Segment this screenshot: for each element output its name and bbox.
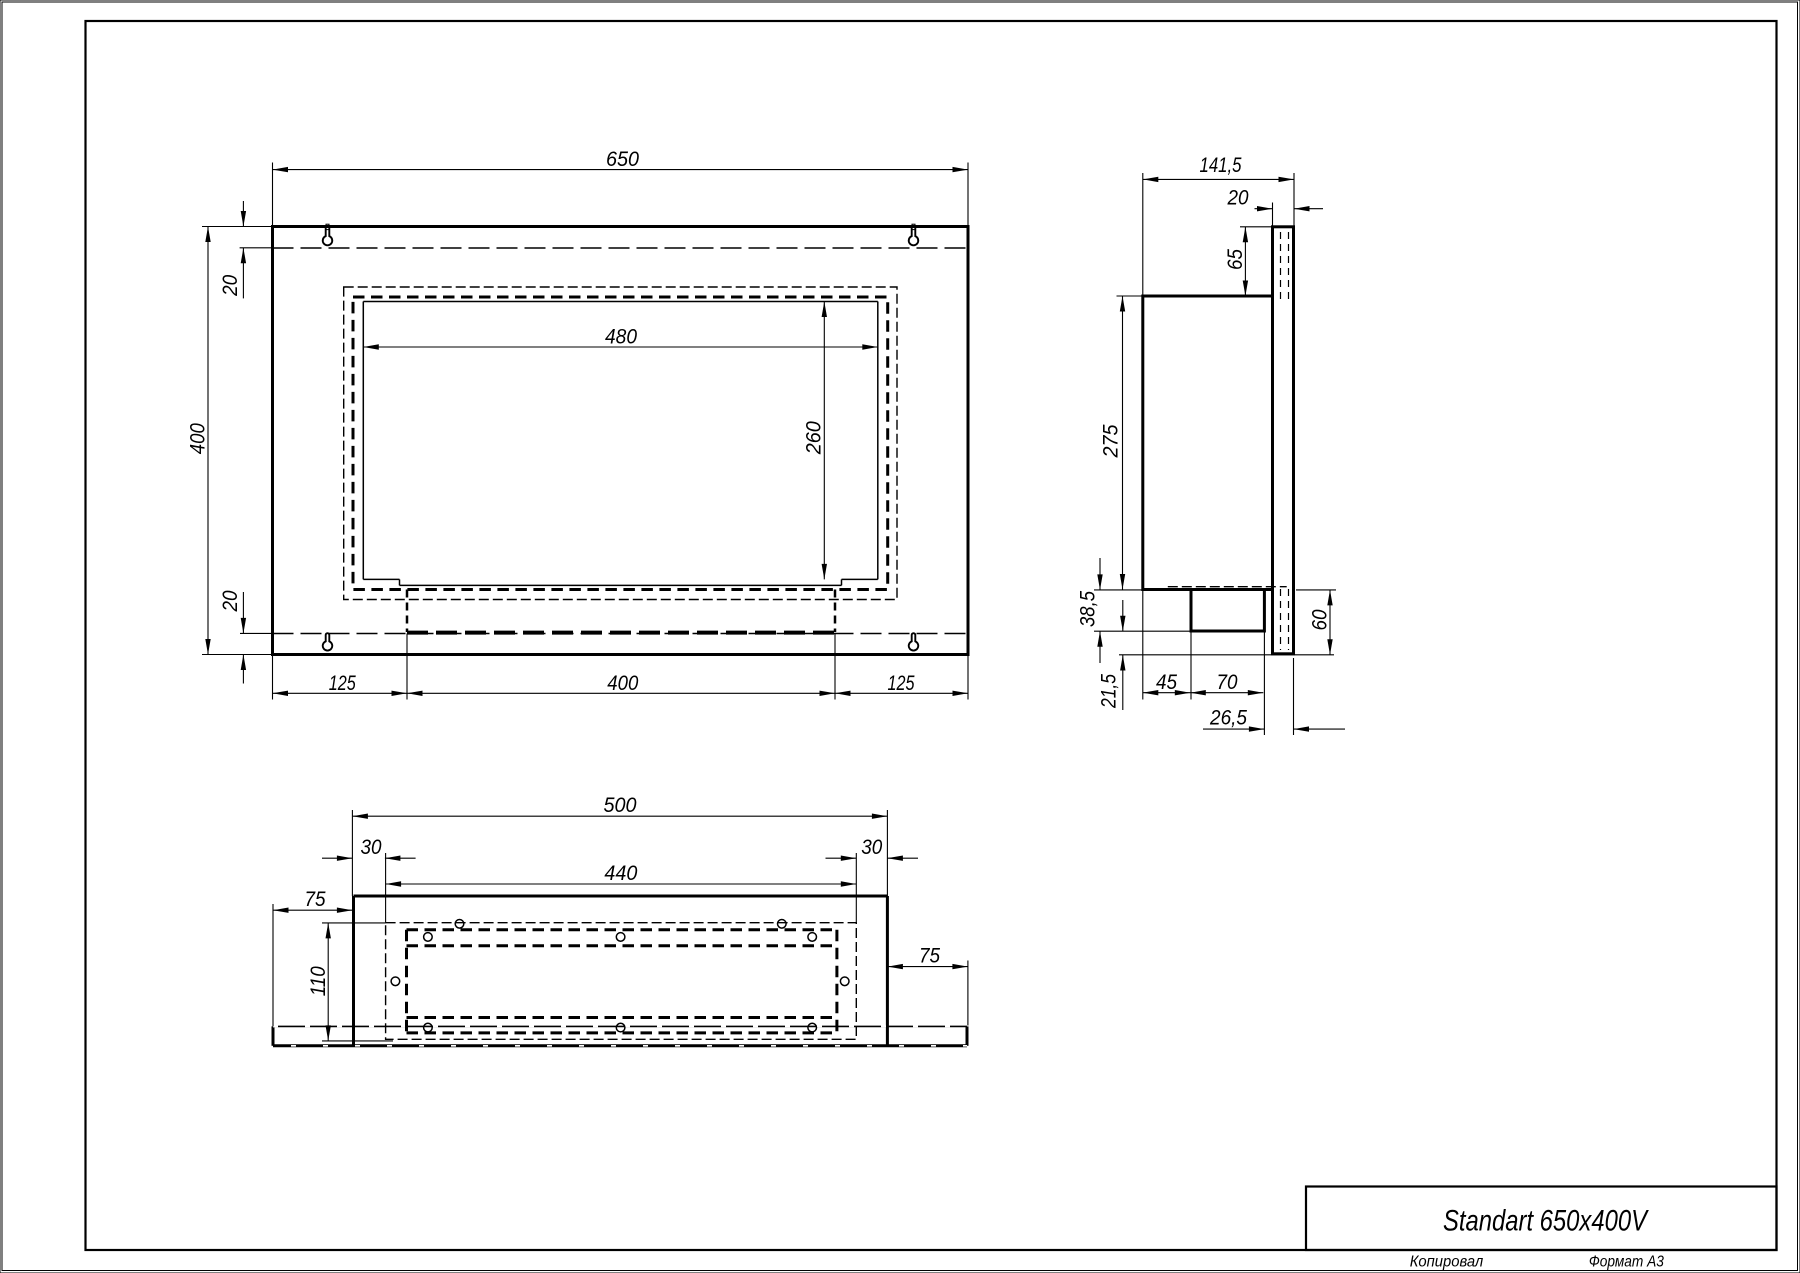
svg-text:260: 260	[802, 421, 826, 455]
svg-text:20: 20	[1227, 186, 1249, 210]
svg-text:60: 60	[1308, 609, 1332, 630]
svg-text:650: 650	[606, 147, 639, 171]
svg-text:30: 30	[861, 835, 882, 859]
svg-text:275: 275	[1099, 424, 1123, 459]
svg-text:26,5: 26,5	[1209, 706, 1248, 730]
svg-text:20: 20	[218, 590, 242, 612]
svg-text:75: 75	[305, 887, 327, 911]
svg-text:110: 110	[306, 966, 330, 996]
svg-text:30: 30	[361, 835, 382, 859]
svg-text:45: 45	[1156, 670, 1178, 694]
svg-text:500: 500	[604, 793, 637, 817]
svg-text:440: 440	[604, 861, 637, 885]
svg-text:125: 125	[888, 671, 916, 695]
svg-text:Формат А3: Формат А3	[1589, 1253, 1664, 1270]
svg-text:400: 400	[607, 671, 638, 695]
svg-text:20: 20	[218, 275, 242, 297]
svg-text:75: 75	[919, 944, 941, 968]
svg-text:400: 400	[186, 423, 210, 454]
svg-text:65: 65	[1223, 248, 1247, 270]
svg-text:21,5: 21,5	[1097, 673, 1121, 709]
svg-text:Standart 650x400V: Standart 650x400V	[1443, 1205, 1649, 1238]
svg-text:38,5: 38,5	[1076, 590, 1100, 627]
svg-text:480: 480	[605, 325, 637, 349]
svg-text:141,5: 141,5	[1200, 153, 1243, 177]
svg-text:70: 70	[1217, 670, 1238, 694]
svg-text:125: 125	[329, 671, 357, 695]
svg-text:Копировал: Копировал	[1410, 1253, 1484, 1270]
